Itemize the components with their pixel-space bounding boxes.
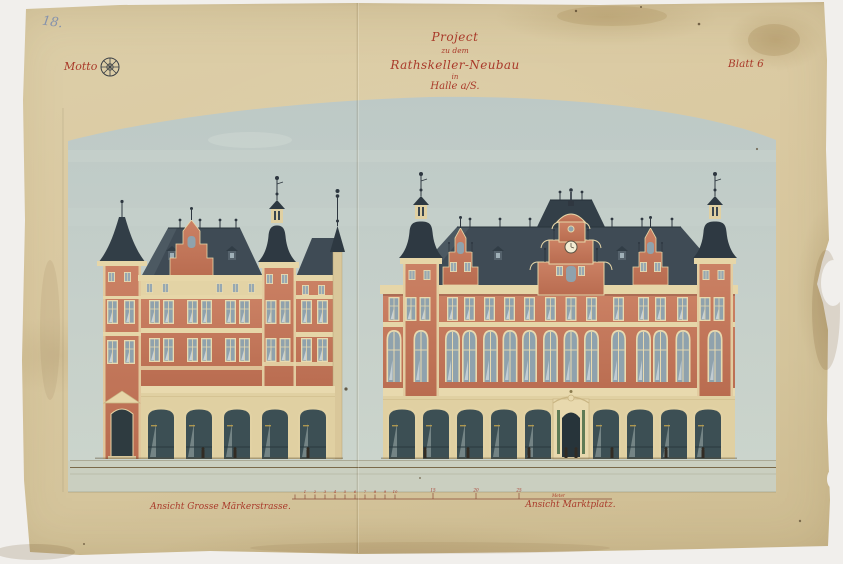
main-entrance-portal — [553, 390, 589, 459]
shop-arcade-right-building — [383, 390, 735, 459]
title-line-rathskeller-neubau: Rathskeller-Neubau — [375, 59, 535, 71]
title-line-halle: Halle a/S. — [375, 82, 535, 92]
scale-tick-label: 4 — [333, 489, 337, 494]
center-fold-line — [357, 3, 359, 553]
sheet-number: Blatt 6 — [728, 59, 764, 70]
scale-tick-label: 10 — [393, 489, 398, 494]
right-elevation-caption: Ansicht Marktplatz. — [503, 501, 638, 510]
entrance-door — [111, 409, 133, 457]
scanned-drawing-sheet: 1 2 3 4 5 6 7 8 9 10 15 20 25 Meter — [0, 0, 843, 564]
balcony — [263, 362, 335, 366]
scale-mark-label: 20 — [472, 488, 479, 493]
motto-label: Motto — [64, 61, 97, 72]
scale-mark-label: 15 — [430, 488, 436, 493]
gable-statue — [569, 188, 573, 192]
title-line-in: in — [375, 74, 535, 81]
scale-unit-label: Meter — [551, 493, 566, 498]
title-line-project: Project — [375, 31, 535, 43]
left-elevation-caption: Ansicht Grosse Märkerstrasse. — [148, 503, 293, 512]
torn-edge-notches — [821, 260, 843, 488]
title-line-zu-dem: zu dem — [375, 47, 535, 55]
scale-tick-label: 1 — [304, 489, 306, 494]
page-number: 18. — [41, 15, 63, 31]
scale-mark-label: 25 — [515, 488, 522, 493]
shop-arcade-left-building — [141, 386, 335, 459]
main-facade — [138, 275, 266, 386]
motto-wheel-stamp-icon — [99, 56, 121, 78]
scale-tick-label: 2 — [313, 489, 317, 494]
